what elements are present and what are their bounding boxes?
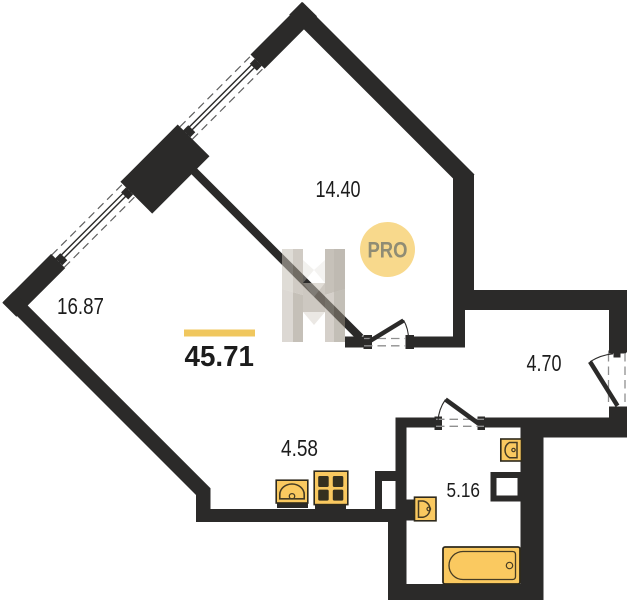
svg-text:4.70: 4.70 xyxy=(527,350,562,376)
svg-text:4.58: 4.58 xyxy=(281,435,318,461)
svg-text:5.16: 5.16 xyxy=(447,480,481,502)
svg-text:14.40: 14.40 xyxy=(316,176,361,202)
svg-text:PRO: PRO xyxy=(368,238,408,263)
svg-text:45.71: 45.71 xyxy=(185,341,255,373)
svg-text:16.87: 16.87 xyxy=(57,293,104,319)
